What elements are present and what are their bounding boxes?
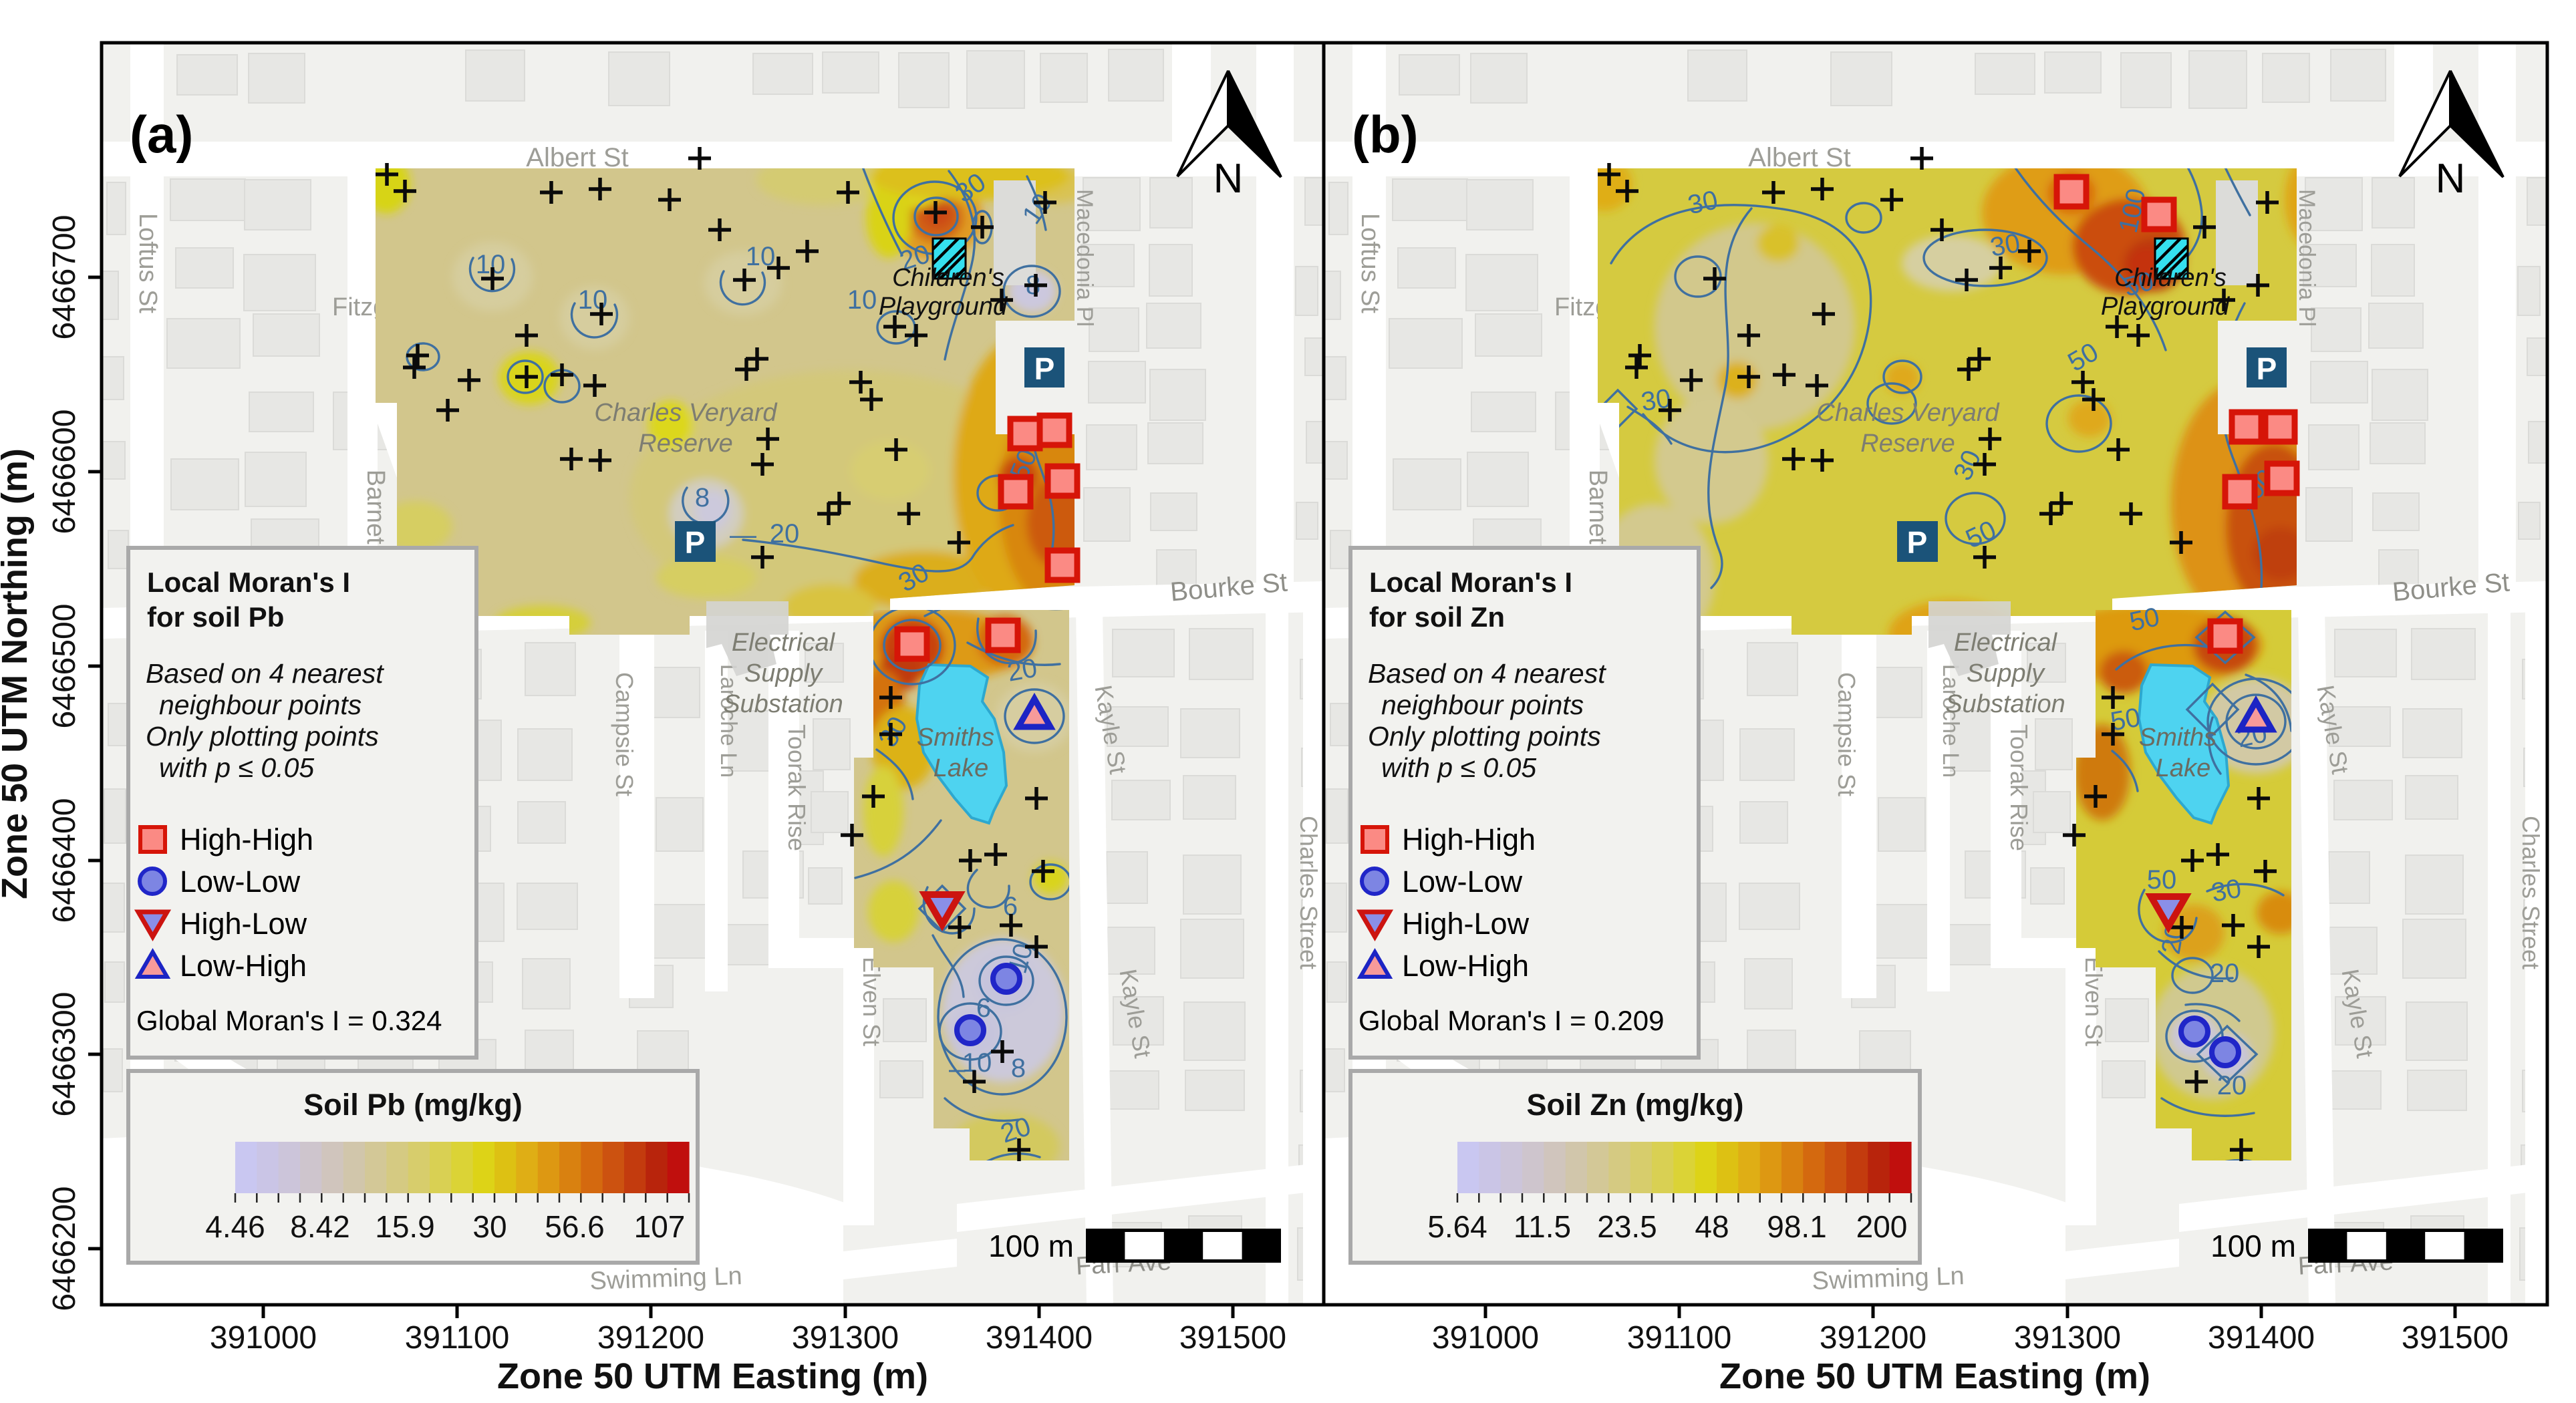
svg-text:Electrical: Electrical	[1954, 629, 2058, 657]
svg-text:6466200: 6466200	[47, 1187, 82, 1311]
svg-text:(b): (b)	[1352, 105, 1419, 164]
svg-text:Lake: Lake	[2156, 754, 2210, 782]
svg-text:P: P	[2257, 351, 2277, 386]
svg-text:Charles Veryard: Charles Veryard	[1816, 399, 2000, 427]
svg-text:with p ≤ 0.05: with p ≤ 0.05	[159, 752, 314, 783]
svg-text:100 m: 100 m	[2210, 1229, 2296, 1263]
svg-text:High-High: High-High	[1402, 822, 1536, 856]
svg-text:391200: 391200	[1820, 1320, 1926, 1356]
svg-text:Macedonia Pl: Macedonia Pl	[1072, 189, 1097, 327]
svg-text:Swimming Ln: Swimming Ln	[589, 1262, 742, 1295]
svg-text:Charles Veryard: Charles Veryard	[594, 399, 778, 427]
svg-text:30: 30	[472, 1209, 507, 1244]
svg-text:Elven St: Elven St	[2080, 957, 2108, 1046]
svg-text:Loftus St: Loftus St	[1356, 213, 1384, 313]
svg-text:30: 30	[1988, 228, 2022, 263]
svg-text:10: 10	[847, 285, 877, 315]
svg-text:10: 10	[476, 250, 506, 279]
svg-text:for soil Zn: for soil Zn	[1369, 601, 1505, 633]
svg-text:Based on 4 nearest: Based on 4 nearest	[1368, 658, 1606, 689]
svg-text:Children's: Children's	[892, 264, 1004, 292]
svg-text:20: 20	[2217, 1071, 2247, 1100]
svg-text:11.5: 11.5	[1514, 1209, 1571, 1244]
svg-text:100 m: 100 m	[988, 1229, 1074, 1263]
svg-text:Campsie St: Campsie St	[611, 672, 638, 796]
svg-text:391000: 391000	[1432, 1320, 1539, 1356]
svg-text:N: N	[1213, 156, 1244, 202]
svg-text:Substation: Substation	[1945, 690, 2065, 718]
svg-text:8.42: 8.42	[290, 1209, 350, 1244]
svg-text:Charles Street: Charles Street	[1295, 816, 1322, 969]
svg-text:Albert St: Albert St	[1748, 143, 1850, 172]
svg-text:Charles Street: Charles Street	[2517, 816, 2545, 969]
svg-text:Soil Zn (mg/kg): Soil Zn (mg/kg)	[1527, 1088, 1744, 1122]
svg-text:4.46: 4.46	[205, 1209, 265, 1244]
svg-text:—: —	[730, 520, 756, 550]
svg-text:200: 200	[1856, 1209, 1908, 1244]
svg-text:391500: 391500	[1179, 1320, 1286, 1356]
svg-text:6466400: 6466400	[47, 798, 82, 923]
svg-text:(a): (a)	[130, 105, 193, 164]
svg-text:Toorak Rise: Toorak Rise	[783, 724, 811, 851]
svg-text:Low-Low: Low-Low	[1402, 865, 1523, 899]
svg-text:20: 20	[770, 519, 800, 549]
svg-text:High-Low: High-Low	[1402, 907, 1530, 941]
svg-text:Low-High: Low-High	[1402, 949, 1529, 983]
svg-text:Reserve: Reserve	[638, 430, 733, 458]
svg-text:Laroche Ln: Laroche Ln	[716, 664, 741, 778]
svg-text:Supply: Supply	[744, 659, 823, 687]
svg-text:107: 107	[634, 1209, 686, 1244]
svg-text:with p ≤ 0.05: with p ≤ 0.05	[1381, 752, 1536, 783]
svg-text:for soil Pb: for soil Pb	[147, 601, 284, 633]
svg-text:10: 10	[962, 1048, 992, 1078]
svg-text:30: 30	[1685, 185, 1721, 220]
svg-text:391300: 391300	[2014, 1320, 2121, 1356]
svg-text:98.1: 98.1	[1767, 1209, 1827, 1244]
svg-text:P: P	[685, 525, 706, 560]
svg-text:Local Moran's I: Local Moran's I	[147, 567, 350, 598]
svg-text:Low-High: Low-High	[180, 949, 307, 983]
svg-text:50: 50	[2147, 865, 2177, 895]
svg-text:Swimming Ln: Swimming Ln	[1812, 1262, 1965, 1295]
svg-text:20: 20	[1005, 653, 1039, 687]
svg-text:neighbour points: neighbour points	[1381, 689, 1584, 720]
svg-text:Low-Low: Low-Low	[180, 865, 301, 899]
svg-text:Smiths: Smiths	[917, 724, 994, 752]
svg-text:Elven St: Elven St	[858, 957, 885, 1046]
svg-text:5.64: 5.64	[1427, 1209, 1487, 1244]
svg-text:Soil Pb (mg/kg): Soil Pb (mg/kg)	[303, 1088, 523, 1122]
svg-text:6466600: 6466600	[47, 410, 82, 534]
svg-text:P: P	[1034, 351, 1055, 386]
svg-text:Global Moran's I = 0.209: Global Moran's I = 0.209	[1358, 1005, 1664, 1036]
svg-text:391000: 391000	[210, 1320, 317, 1356]
svg-text:50: 50	[2127, 602, 2162, 637]
svg-text:Playground: Playground	[879, 293, 1008, 321]
svg-text:Electrical: Electrical	[732, 629, 836, 657]
svg-text:48: 48	[1695, 1209, 1729, 1244]
svg-text:Loftus St: Loftus St	[134, 213, 162, 313]
svg-text:Based on 4 nearest: Based on 4 nearest	[146, 658, 384, 689]
svg-text:Macedonia Pl: Macedonia Pl	[2294, 189, 2319, 327]
svg-text:Lake: Lake	[934, 754, 988, 782]
svg-text:391400: 391400	[2208, 1320, 2315, 1356]
svg-text:Local Moran's I: Local Moran's I	[1369, 567, 1572, 598]
svg-text:Children's: Children's	[2114, 264, 2227, 292]
svg-text:Reserve: Reserve	[1860, 430, 1955, 458]
svg-text:Only plotting points: Only plotting points	[146, 721, 379, 752]
svg-text:391100: 391100	[405, 1320, 510, 1356]
svg-text:Playground: Playground	[2101, 293, 2231, 321]
svg-text:8: 8	[1011, 1054, 1026, 1083]
svg-text:30: 30	[2209, 874, 2243, 908]
svg-text:15.9: 15.9	[375, 1209, 435, 1244]
svg-text:Zone 50 UTM Easting (m): Zone 50 UTM Easting (m)	[1719, 1356, 2150, 1396]
svg-text:391300: 391300	[792, 1320, 899, 1356]
svg-text:391400: 391400	[986, 1320, 1093, 1356]
svg-text:6466700: 6466700	[47, 215, 82, 340]
svg-text:23.5: 23.5	[1597, 1209, 1657, 1244]
svg-text:Global Moran's I = 0.324: Global Moran's I = 0.324	[136, 1005, 442, 1036]
svg-text:Smiths: Smiths	[2139, 724, 2216, 752]
svg-text:P: P	[1907, 525, 1928, 560]
svg-text:Only plotting points: Only plotting points	[1368, 721, 1601, 752]
svg-text:High-High: High-High	[180, 822, 313, 856]
svg-text:56.6: 56.6	[545, 1209, 605, 1244]
svg-text:391500: 391500	[2402, 1320, 2509, 1356]
svg-text:Laroche Ln: Laroche Ln	[1938, 664, 1963, 778]
svg-text:neighbour points: neighbour points	[159, 689, 362, 720]
svg-text:Campsie St: Campsie St	[1833, 672, 1860, 796]
svg-text:20: 20	[2210, 959, 2240, 988]
svg-text:6466300: 6466300	[47, 992, 82, 1117]
svg-text:Supply: Supply	[1967, 659, 2045, 687]
svg-text:391100: 391100	[1627, 1320, 1732, 1356]
svg-text:Albert St: Albert St	[526, 143, 628, 172]
svg-text:391200: 391200	[597, 1320, 704, 1356]
svg-text:Toorak Rise: Toorak Rise	[2005, 724, 2033, 851]
svg-text:Zone 50 UTM Northing (m): Zone 50 UTM Northing (m)	[0, 448, 35, 899]
svg-text:N: N	[2436, 156, 2466, 202]
svg-text:6466500: 6466500	[47, 604, 82, 729]
svg-text:High-Low: High-Low	[180, 907, 307, 941]
svg-text:Zone 50 UTM Easting (m): Zone 50 UTM Easting (m)	[497, 1356, 928, 1396]
svg-text:Substation: Substation	[723, 690, 843, 718]
svg-text:8: 8	[695, 483, 710, 512]
